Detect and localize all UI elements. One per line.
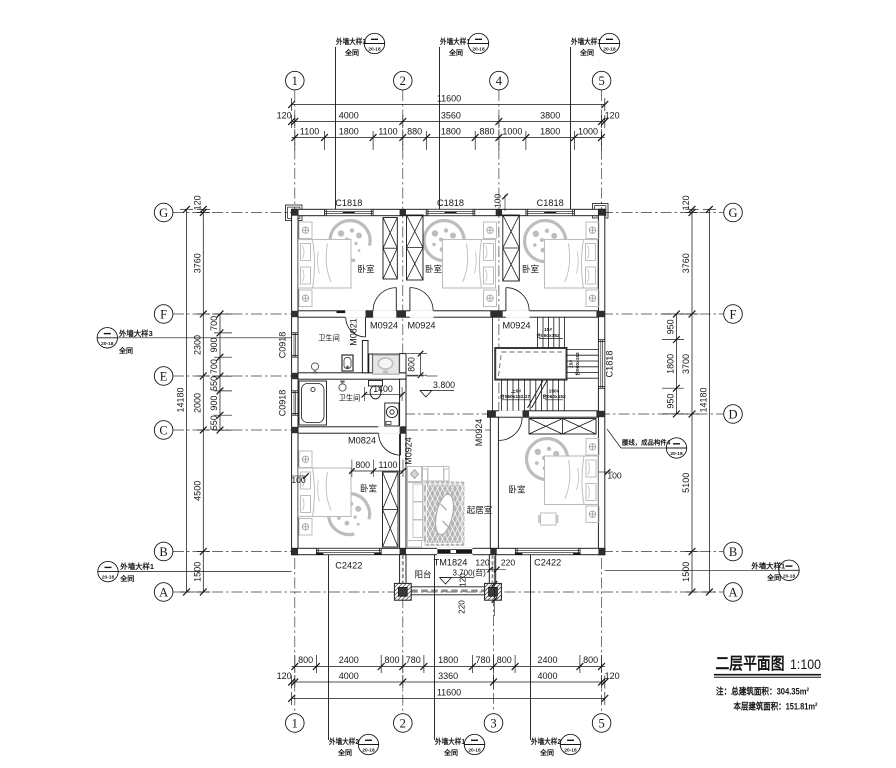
svg-text:780: 780 [475,655,490,665]
svg-text:120: 120 [192,195,202,210]
svg-text:卧室: 卧室 [508,484,526,494]
svg-text:100: 100 [291,475,306,485]
svg-text:F: F [730,307,737,321]
svg-text:3800: 3800 [540,110,560,120]
svg-text:阳台: 阳台 [414,569,431,579]
svg-text:880: 880 [479,126,494,136]
svg-text:F: F [160,307,167,321]
svg-text:M0824: M0824 [348,435,376,445]
svg-text:800: 800 [298,655,313,665]
svg-text:120: 120 [277,671,292,681]
svg-text:卧室: 卧室 [360,483,378,493]
svg-text:3.800: 3.800 [433,380,455,390]
svg-text:外墙大样1: 外墙大样1 [750,562,785,571]
svg-text:20-18: 20-18 [670,451,683,457]
svg-text:800: 800 [384,655,399,665]
svg-text:G: G [159,206,168,220]
svg-text:120: 120 [277,110,292,120]
svg-text:2000: 2000 [192,393,202,413]
svg-text:全同: 全同 [448,48,463,57]
svg-text:1: 1 [292,74,298,88]
svg-text:A: A [159,585,168,599]
svg-text:3: 3 [490,716,496,730]
svg-text:950: 950 [665,394,675,409]
svg-text:220: 220 [501,557,516,567]
svg-text:注：总建筑面积：304.35m²: 注：总建筑面积：304.35m² [716,686,809,697]
svg-text:15#: 15# [544,327,552,333]
svg-text:G: G [728,206,737,220]
svg-text:1100: 1100 [300,126,319,136]
svg-text:C1818: C1818 [437,198,464,208]
svg-text:外墙大样3: 外墙大样3 [335,37,366,46]
svg-text:B: B [159,545,167,559]
svg-text:20-18: 20-18 [102,575,115,581]
svg-text:1100: 1100 [379,460,398,470]
svg-text:外墙大样1: 外墙大样1 [570,37,601,46]
svg-text:1800: 1800 [339,126,359,136]
svg-text:14180: 14180 [176,387,186,412]
svg-text:800: 800 [583,655,598,665]
svg-text:3760: 3760 [681,253,691,273]
svg-text:全同: 全同 [539,748,554,757]
svg-text:3700: 3700 [681,354,691,374]
svg-text:全同: 全同 [119,574,134,583]
svg-text:腰线，成品构件4: 腰线，成品构件4 [621,437,671,446]
svg-text:上0#: 上0# [511,387,521,394]
svg-text:M0924: M0924 [502,320,530,330]
svg-text:外墙大样3: 外墙大样3 [118,329,153,338]
svg-text:全同: 全同 [766,573,781,582]
svg-text:全同: 全同 [443,748,458,757]
svg-text:4: 4 [496,74,503,88]
svg-text:20-18: 20-18 [783,573,796,579]
svg-text:800: 800 [497,655,512,665]
svg-text:1: 1 [292,716,298,730]
svg-text:C0918: C0918 [278,390,288,417]
svg-text:2: 2 [400,716,406,730]
svg-text:二层平面图: 二层平面图 [715,654,784,673]
svg-text:5: 5 [598,74,604,88]
svg-text:3360: 3360 [438,671,458,681]
svg-text:外墙大样2: 外墙大样2 [530,737,561,746]
svg-text:卫生间: 卫生间 [339,393,361,402]
svg-text:E: E [160,369,168,383]
svg-text:C1818: C1818 [335,198,362,208]
svg-text:台060x152.17: 台060x152.17 [500,393,530,400]
svg-text:3760: 3760 [192,253,202,273]
svg-text:台060x152: 台060x152 [574,352,581,376]
svg-text:100: 100 [493,194,503,209]
svg-text:M0924: M0924 [407,320,435,330]
svg-text:14180: 14180 [698,387,708,412]
svg-text:120: 120 [459,573,468,587]
svg-text:台060x152: 台060x152 [536,332,560,339]
svg-text:M0924: M0924 [404,437,414,465]
svg-text:外墙大样1: 外墙大样1 [434,737,465,746]
svg-text:D: D [728,407,737,421]
svg-text:C0918: C0918 [278,332,288,359]
svg-text:C1818: C1818 [605,350,615,377]
svg-text:外墙大样1: 外墙大样1 [439,37,470,46]
svg-text:20-18: 20-18 [362,747,375,753]
svg-text:C1818: C1818 [537,198,564,208]
svg-text:1800: 1800 [441,126,461,136]
svg-text:4000: 4000 [537,671,557,681]
svg-text:120: 120 [681,195,691,210]
svg-text:1000: 1000 [578,126,598,136]
svg-text:卧室: 卧室 [425,264,443,274]
svg-text:3560: 3560 [441,110,461,120]
svg-text:全同: 全同 [579,48,594,57]
svg-text:11600: 11600 [437,93,461,103]
svg-text:20-18: 20-18 [472,46,485,52]
svg-text:C2422: C2422 [534,557,561,567]
svg-text:20-18: 20-18 [564,747,577,753]
svg-text:C: C [159,423,167,437]
svg-text:700: 700 [209,316,219,331]
svg-text:780: 780 [406,655,421,665]
svg-text:2: 2 [400,74,406,88]
svg-text:5100: 5100 [681,473,691,493]
svg-text:900: 900 [209,337,219,352]
svg-text:1800: 1800 [665,354,675,374]
svg-text:1100: 1100 [378,126,397,136]
svg-text:2400: 2400 [339,655,359,665]
svg-text:700: 700 [209,359,219,374]
svg-text:M0924: M0924 [474,419,484,447]
svg-text:4500: 4500 [192,481,202,501]
svg-text:全同: 全同 [118,346,133,355]
svg-text:900: 900 [209,396,219,411]
svg-text:20-18: 20-18 [468,747,481,753]
svg-text:卫生间: 卫生间 [318,333,340,342]
svg-text:20-18: 20-18 [603,46,616,52]
svg-text:全同: 全同 [344,48,359,57]
svg-text:1:100: 1:100 [790,656,821,672]
svg-text:外墙大样2: 外墙大样2 [328,737,359,746]
svg-text:1000: 1000 [502,126,522,136]
svg-text:220: 220 [458,600,467,614]
svg-text:M0821: M0821 [349,318,359,346]
svg-text:4000: 4000 [339,671,359,681]
svg-text:卧室: 卧室 [522,264,540,274]
svg-text:800: 800 [355,460,370,470]
svg-text:1400: 1400 [373,384,393,394]
svg-text:120: 120 [475,557,490,567]
svg-text:全同: 全同 [337,748,352,757]
svg-text:4000: 4000 [339,110,359,120]
svg-text:C2422: C2422 [335,560,362,570]
svg-text:1800: 1800 [540,126,560,136]
svg-text:卧室: 卧室 [357,264,375,274]
svg-text:B: B [729,545,737,559]
svg-text:A: A [728,585,737,599]
svg-text:M0924: M0924 [370,320,398,330]
svg-text:150#: 150# [549,388,560,394]
svg-text:本层建筑面积：151.81m²: 本层建筑面积：151.81m² [733,701,817,712]
svg-text:起居室: 起居室 [467,505,493,515]
svg-text:1500: 1500 [681,562,691,582]
svg-text:1800: 1800 [438,655,458,665]
svg-text:800: 800 [407,357,417,372]
svg-text:880: 880 [407,126,422,136]
svg-text:15#: 15# [569,360,575,368]
svg-text:TM1824: TM1824 [434,557,468,567]
svg-text:11600: 11600 [437,687,461,697]
svg-text:950: 950 [665,319,675,334]
svg-text:2400: 2400 [537,655,557,665]
svg-text:20-18: 20-18 [101,341,114,347]
svg-text:5: 5 [598,716,604,730]
svg-text:20-18: 20-18 [368,46,381,52]
svg-text:外墙大样1: 外墙大样1 [119,562,154,571]
svg-text:台060x152: 台060x152 [542,393,566,400]
